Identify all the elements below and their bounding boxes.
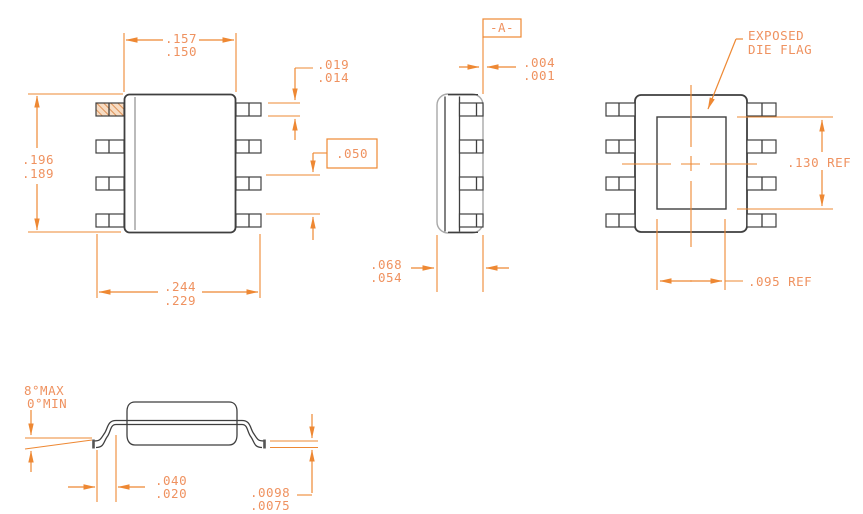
dim-foot-min: .020 <box>155 486 187 501</box>
dim-package-height: .068 .054 <box>370 235 509 292</box>
dim-lead-span-max: .244 <box>164 279 196 294</box>
dim-flag-length: .130 REF <box>737 117 851 209</box>
package-body-top-view <box>125 95 236 233</box>
pins-right <box>236 103 261 227</box>
pin-1-hatched <box>96 103 124 116</box>
dim-pitch-value: .050 <box>336 146 368 161</box>
dim-body-width: .157 .150 <box>124 31 236 92</box>
pin <box>606 214 635 227</box>
dim-lead-span-min: .229 <box>164 293 196 308</box>
pin <box>460 177 484 190</box>
pins-left <box>606 103 635 227</box>
side-view: -A- .004 .001 .068 .054 <box>370 19 555 292</box>
dim-lead-width-min: .014 <box>317 70 349 85</box>
dim-flag-width-value: .095 REF <box>748 274 812 289</box>
dim-lead-angle: 8°MAX 0°MIN <box>24 383 92 472</box>
pins-right <box>747 103 776 227</box>
pins-left <box>96 103 124 227</box>
lead-left <box>94 421 117 449</box>
lead-right <box>242 421 265 449</box>
dim-angle-min: 0°MIN <box>27 396 67 411</box>
dim-lead-thickness: .0098 .0075 <box>250 414 318 513</box>
dim-body-length-min: .189 <box>22 166 54 181</box>
dim-body-width-min: .150 <box>165 44 197 59</box>
pin <box>96 214 124 227</box>
die-flag-label-line1: EXPOSED <box>748 28 804 43</box>
datum-a-label: -A- <box>490 20 514 35</box>
top-view: .157 .150 .196 .189 .244 .229 <box>22 31 377 308</box>
pin <box>606 177 635 190</box>
dim-pitch: .050 <box>266 139 377 240</box>
pin <box>606 103 635 116</box>
pin <box>460 214 484 227</box>
dim-body-length-max: .196 <box>22 152 54 167</box>
die-flag-label-line2: DIE FLAG <box>748 42 812 57</box>
package-body-profile <box>127 402 237 445</box>
dim-thick-min: .0075 <box>250 498 290 513</box>
profile-view: 8°MAX 0°MIN .040 .020 .0098 .0075 <box>24 383 318 513</box>
bottom-view: EXPOSED DIE FLAG .130 REF .095 REF <box>606 28 851 290</box>
dim-standoff-min: .001 <box>523 68 555 83</box>
pin <box>96 140 124 153</box>
datum-a: -A- <box>483 19 521 94</box>
dim-lead-width: .019 .014 <box>268 57 349 140</box>
dim-flag-length-value: .130 REF <box>787 155 851 170</box>
package-outline-drawing: .157 .150 .196 .189 .244 .229 <box>0 0 863 514</box>
pin <box>460 140 484 153</box>
pin <box>606 140 635 153</box>
dim-height-min: .054 <box>370 270 402 285</box>
pin <box>96 177 124 190</box>
drawing-canvas: .157 .150 .196 .189 .244 .229 <box>0 0 863 514</box>
dim-lead-span: .244 .229 <box>97 234 260 308</box>
dim-standoff: .004 .001 <box>459 55 555 83</box>
pin <box>460 103 484 116</box>
